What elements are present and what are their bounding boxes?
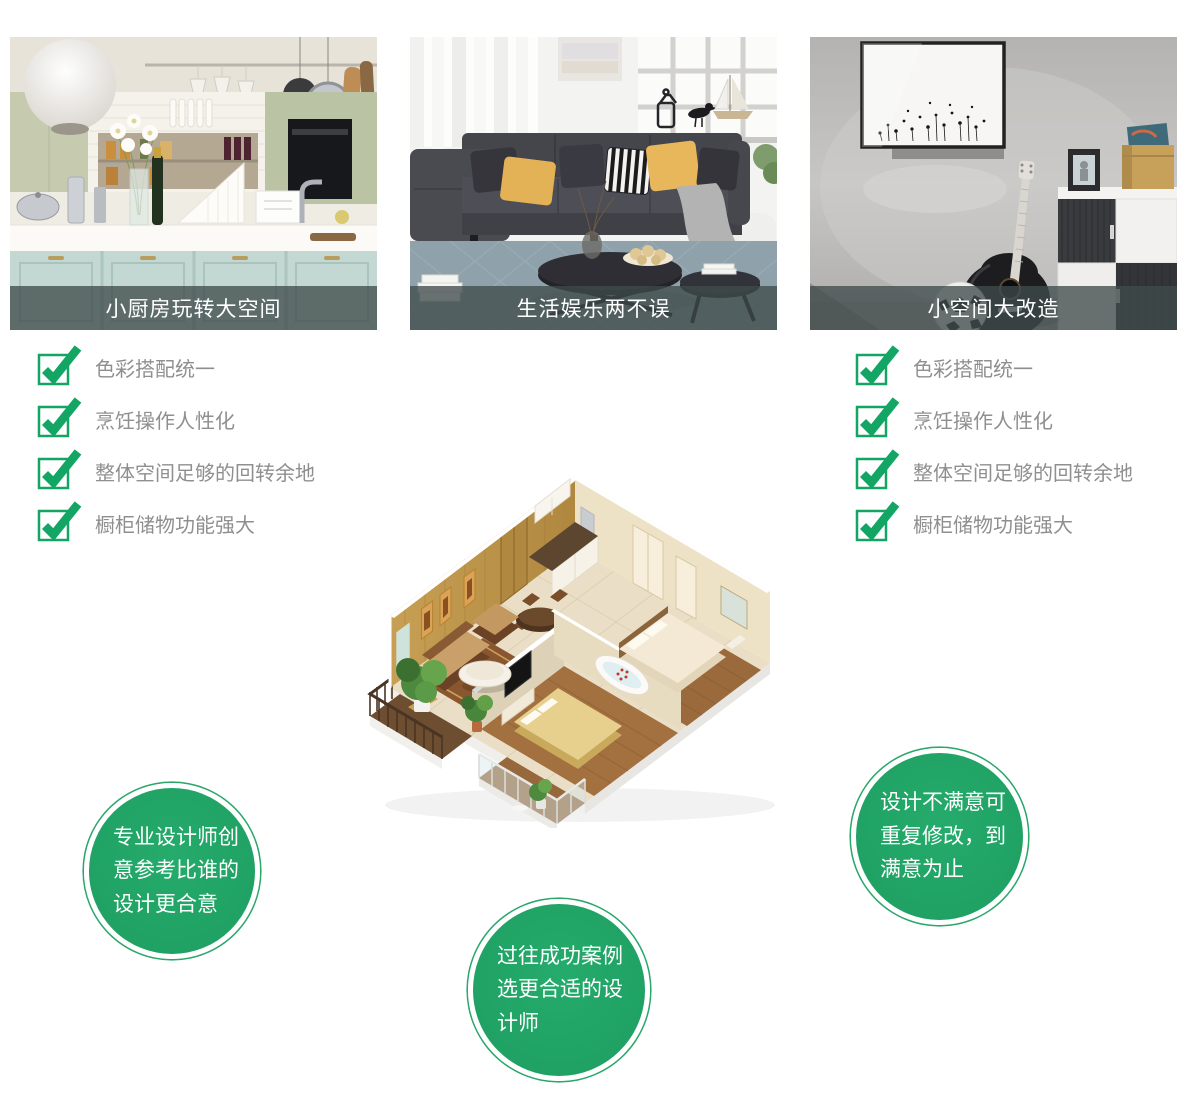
- check-icon: [855, 501, 901, 543]
- photo-caption: 生活娱乐两不误: [410, 286, 777, 330]
- gallery-card-smallspace: 小空间大改造: [810, 37, 1177, 330]
- check-icon: [37, 449, 83, 491]
- checklist-item-label: 橱柜储物功能强大: [95, 512, 255, 538]
- plate-rack: [170, 99, 212, 127]
- bubble-line: 意参考比谁的: [113, 854, 255, 888]
- checklist-item: 色彩搭配统一: [37, 351, 367, 403]
- photo-caption: 小厨房玩转大空间: [10, 286, 377, 330]
- checklist-item-label: 色彩搭配统一: [913, 356, 1033, 382]
- checklist-item-label: 整体空间足够的回转余地: [913, 460, 1133, 486]
- checklist-item-label: 橱柜储物功能强大: [913, 512, 1073, 538]
- photo-caption-text: 生活娱乐两不误: [517, 293, 671, 323]
- checklist-item: 橱柜储物功能强大: [855, 507, 1180, 559]
- photo-caption: 小空间大改造: [810, 286, 1177, 330]
- 3d-apartment-floorplan: [330, 468, 785, 828]
- bubble-line: 设计不满意可: [880, 786, 1023, 820]
- checklist-right: 色彩搭配统一 烹饪操作人性化 整体空间足够的回转余地 橱柜储物功能强大: [855, 351, 1180, 559]
- checklist-item: 烹饪操作人性化: [855, 403, 1180, 455]
- checklist-item: 整体空间足够的回转余地: [37, 455, 367, 507]
- photo-caption-text: 小空间大改造: [928, 293, 1060, 323]
- window-left: [410, 37, 538, 149]
- bubble-line: 专业设计师创: [113, 821, 255, 855]
- bubble-line: 选更合适的设: [497, 973, 645, 1007]
- gallery-card-kitchen: 小厨房玩转大空间: [10, 37, 377, 330]
- home-design-promo-section: 小厨房玩转大空间: [0, 0, 1180, 1095]
- checklist-item: 烹饪操作人性化: [37, 403, 367, 455]
- bubble-line: 设计更合意: [113, 888, 255, 922]
- photo-frame: [1068, 149, 1100, 191]
- check-icon: [37, 397, 83, 439]
- bubble-line: 过往成功案例: [497, 940, 645, 974]
- floorplan-illustration: [330, 468, 785, 828]
- floorplan-coffee-table: [459, 661, 511, 693]
- checklist-left: 色彩搭配统一 烹饪操作人性化 整体空间足够的回转余地 橱柜储物功能强大: [37, 351, 367, 559]
- checklist-item-label: 烹饪操作人性化: [95, 408, 235, 434]
- check-icon: [855, 345, 901, 387]
- glass-vase: [582, 231, 602, 259]
- door: [676, 556, 696, 619]
- checklist-item: 橱柜储物功能强大: [37, 507, 367, 559]
- bubble-line: 满意为止: [880, 853, 1023, 887]
- checklist-item-label: 色彩搭配统一: [95, 356, 215, 382]
- bubble-line: 重复修改，到: [880, 820, 1023, 854]
- bubble-line: 计师: [497, 1007, 645, 1041]
- framed-art: [862, 43, 1004, 159]
- checklist-item: 整体空间足够的回转余地: [855, 455, 1180, 507]
- checklist-item-label: 整体空间足够的回转余地: [95, 460, 315, 486]
- storage-box: [1122, 123, 1174, 189]
- benefit-bubble-revisions: 设计不满意可 重复修改，到 满意为止: [851, 748, 1028, 925]
- photo-caption-text: 小厨房玩转大空间: [106, 293, 282, 323]
- benefit-bubble-designers: 专业设计师创 意参考比谁的 设计更合意: [84, 783, 260, 959]
- check-icon: [855, 449, 901, 491]
- gallery-card-livingroom: 生活娱乐两不误: [410, 37, 777, 330]
- check-icon: [37, 345, 83, 387]
- benefit-bubble-cases: 过往成功案例 选更合适的设 计师: [468, 899, 650, 1081]
- check-icon: [37, 501, 83, 543]
- check-icon: [855, 397, 901, 439]
- wall-art: [558, 37, 622, 81]
- checklist-item-label: 烹饪操作人性化: [913, 408, 1053, 434]
- checklist-item: 色彩搭配统一: [855, 351, 1180, 403]
